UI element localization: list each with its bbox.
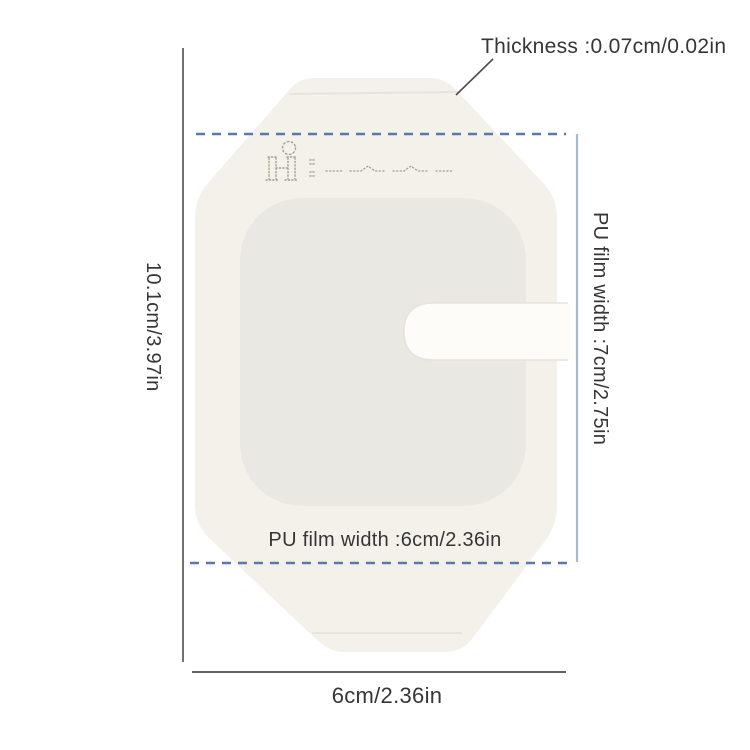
- dressing-dimension-diagram: Thickness :0.07cm/0.02in 10.1cm/3.97in P…: [0, 0, 750, 750]
- thickness-label: Thickness :0.07cm/0.02in: [481, 35, 726, 59]
- thickness-leader-line: [456, 59, 493, 95]
- pu-film-width-right-label: PU film width :7cm/2.75in: [588, 212, 611, 445]
- catheter-notch: [404, 303, 570, 360]
- overall-height-label: 10.1cm/3.97in: [141, 262, 164, 392]
- pu-film-width-bottom-label: PU film width :6cm/2.36in: [268, 529, 501, 552]
- dressing-illustration: [0, 0, 750, 750]
- overall-width-label: 6cm/2.36in: [332, 683, 443, 709]
